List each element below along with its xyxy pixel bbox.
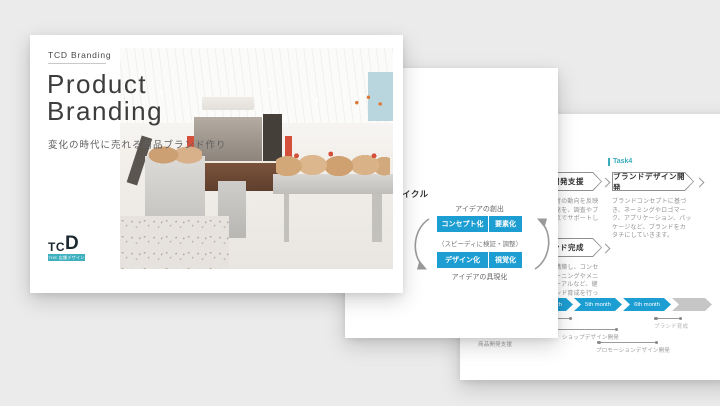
task-chevron-brand-design: ブランドデザイン開発	[612, 172, 694, 191]
bracket-label-product-support: 商品開発支援	[478, 340, 512, 348]
timeline-month-5-label: 5th month	[585, 302, 611, 308]
task-number-label: Task4	[608, 158, 632, 166]
tcd-logo-tc: TC	[48, 241, 65, 253]
photo-pendant-lights	[349, 81, 387, 108]
timeline-month-next	[672, 298, 712, 311]
bracket-line-brand-growth	[654, 318, 682, 319]
cover-title: Product Branding	[47, 71, 163, 125]
timeline-month-5: 5th month	[574, 298, 622, 311]
hero-mockup: Task4 商品開発支援 ブランドデザイン開発 市場や生活者の動向を反映した商品…	[0, 0, 720, 406]
tcd-logo: TCD THE 店舗デザイン	[48, 234, 85, 261]
task-body-brand-design: ブランドコンセプトに基づき、ネーミングやロゴマーク、アプリケーション、パッケージ…	[612, 198, 692, 241]
tcd-logo-d: D	[65, 234, 79, 253]
photo-right-table	[273, 174, 393, 194]
bracket-label-shop-design: ショップデザイン開発	[562, 333, 619, 341]
cover-title-line2: Branding	[47, 98, 163, 125]
cover-subtitle: 変化の時代に売れる商品ブランド作り	[48, 137, 227, 151]
bracket-label-brand-growth: ブランド育成	[654, 322, 688, 330]
chevron-separator-icon	[601, 178, 611, 188]
photo-right-table-legs	[284, 194, 382, 243]
timeline-month-6: 6th month	[623, 298, 671, 311]
tcd-logo-tagline: THE 店舗デザイン	[48, 255, 84, 261]
cover-eyebrow-rule	[48, 63, 106, 64]
cover-eyebrow: TCD Branding	[48, 50, 111, 60]
tcd-logo-tagline-bar: THE 店舗デザイン	[48, 254, 85, 261]
photo-price-cards	[276, 145, 391, 163]
photo-terrazzo-floor	[120, 216, 229, 269]
photo-left-shelf	[145, 156, 205, 216]
timeline-month-6-label: 6th month	[634, 302, 660, 308]
cycle-arrows-icon	[407, 213, 557, 275]
task-chevron-brand-design-label: ブランドデザイン開発	[613, 173, 693, 190]
chevron-separator-icon	[695, 178, 705, 188]
slide-cover: TCD Branding Product Branding 変化の時代に売れる商…	[30, 35, 403, 293]
bracket-label-promotion-design: プロモーションデザイン開発	[596, 346, 670, 354]
chevron-separator-icon	[601, 244, 611, 254]
cover-title-line1: Product	[47, 71, 163, 98]
photo-shop-sign	[202, 97, 254, 110]
bracket-line-promotion-design	[597, 342, 658, 343]
